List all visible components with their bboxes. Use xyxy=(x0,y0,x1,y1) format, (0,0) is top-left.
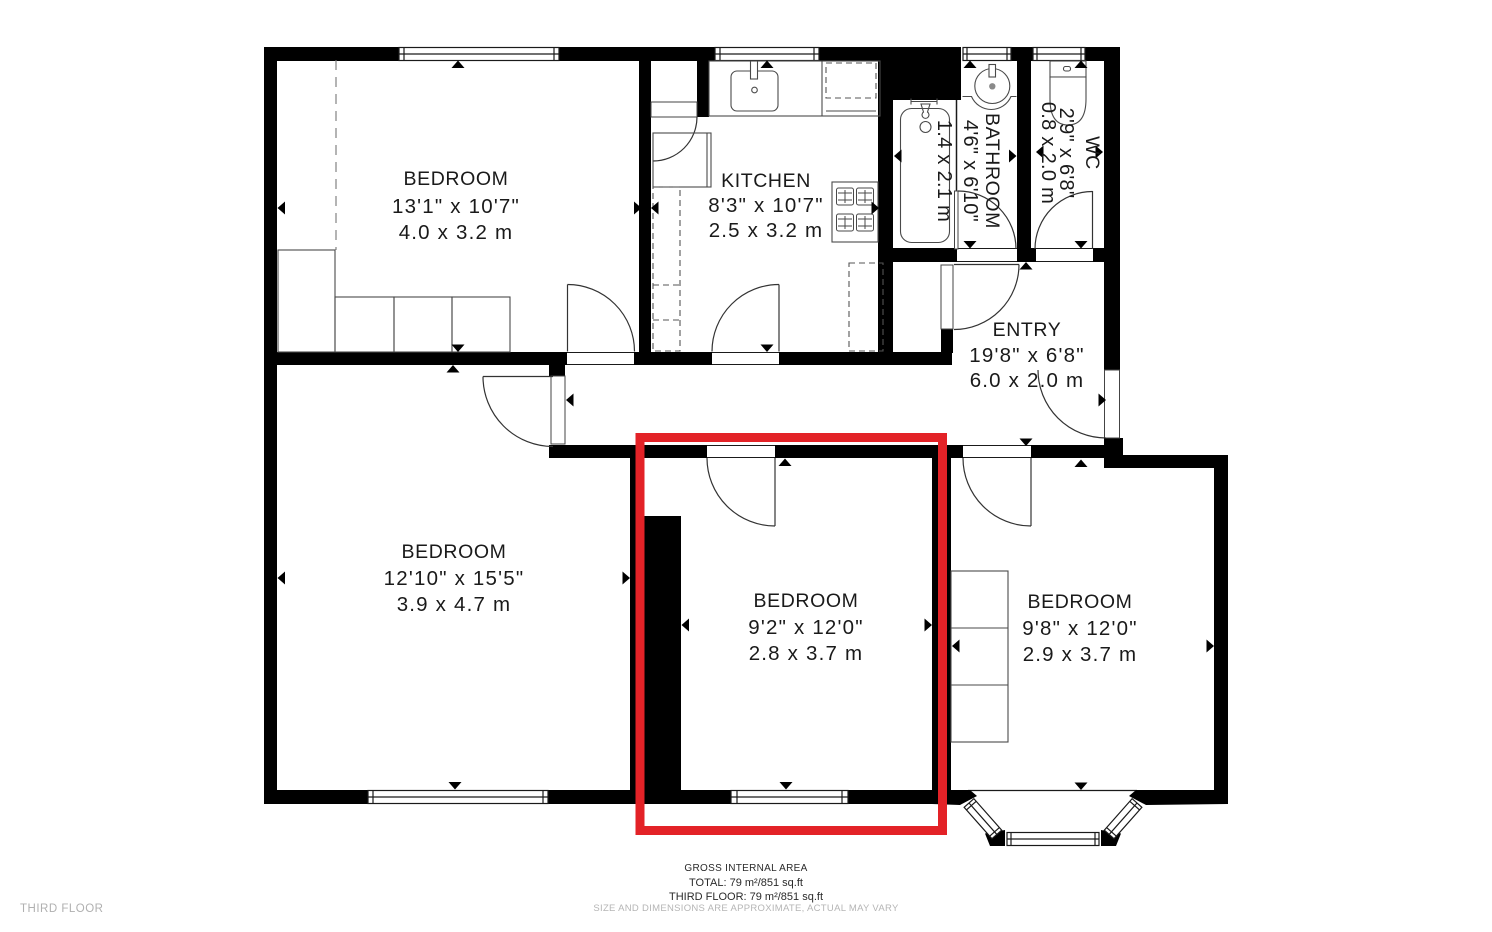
svg-text:9'2" x 12'0": 9'2" x 12'0" xyxy=(748,616,863,639)
svg-text:BEDROOM: BEDROOM xyxy=(1028,591,1133,613)
svg-text:6.0 x 2.0 m: 6.0 x 2.0 m xyxy=(970,369,1085,392)
svg-text:3.9 x 4.7 m: 3.9 x 4.7 m xyxy=(397,593,512,616)
svg-text:BEDROOM: BEDROOM xyxy=(404,168,509,190)
svg-text:4'6" x 6'10": 4'6" x 6'10" xyxy=(959,120,981,222)
svg-text:1.4 x 2.1 m: 1.4 x 2.1 m xyxy=(933,120,955,222)
svg-text:2.9 x 3.7 m: 2.9 x 3.7 m xyxy=(1023,643,1138,666)
svg-text:BEDROOM: BEDROOM xyxy=(754,590,859,612)
svg-text:12'10" x 15'5": 12'10" x 15'5" xyxy=(384,567,525,590)
svg-text:2.5 x 3.2 m: 2.5 x 3.2 m xyxy=(709,219,824,242)
svg-text:8'3" x 10'7": 8'3" x 10'7" xyxy=(708,194,823,217)
svg-text:0.8 x 2.0 m: 0.8 x 2.0 m xyxy=(1037,102,1059,204)
svg-text:13'1" x 10'7": 13'1" x 10'7" xyxy=(392,195,520,218)
svg-text:THIRD FLOOR: 79 m²/851 sq.ft: THIRD FLOOR: 79 m²/851 sq.ft xyxy=(669,891,823,903)
svg-text:SIZE AND DIMENSIONS ARE APPROX: SIZE AND DIMENSIONS ARE APPROXIMATE, ACT… xyxy=(593,903,899,914)
svg-text:KITCHEN: KITCHEN xyxy=(721,170,811,192)
svg-text:BEDROOM: BEDROOM xyxy=(402,541,507,563)
svg-text:BATHROOM: BATHROOM xyxy=(981,113,1003,229)
svg-text:ENTRY: ENTRY xyxy=(993,319,1062,341)
svg-text:4.0 x 3.2 m: 4.0 x 3.2 m xyxy=(399,221,514,244)
svg-text:19'8" x 6'8": 19'8" x 6'8" xyxy=(969,344,1084,367)
svg-text:WC: WC xyxy=(1081,136,1103,170)
svg-text:2.8 x 3.7 m: 2.8 x 3.7 m xyxy=(749,642,864,665)
svg-text:GROSS INTERNAL AREA: GROSS INTERNAL AREA xyxy=(684,863,807,874)
svg-text:TOTAL: 79 m²/851 sq.ft: TOTAL: 79 m²/851 sq.ft xyxy=(689,877,803,889)
svg-text:THIRD FLOOR: THIRD FLOOR xyxy=(20,903,103,915)
svg-text:9'8" x 12'0": 9'8" x 12'0" xyxy=(1022,617,1137,640)
